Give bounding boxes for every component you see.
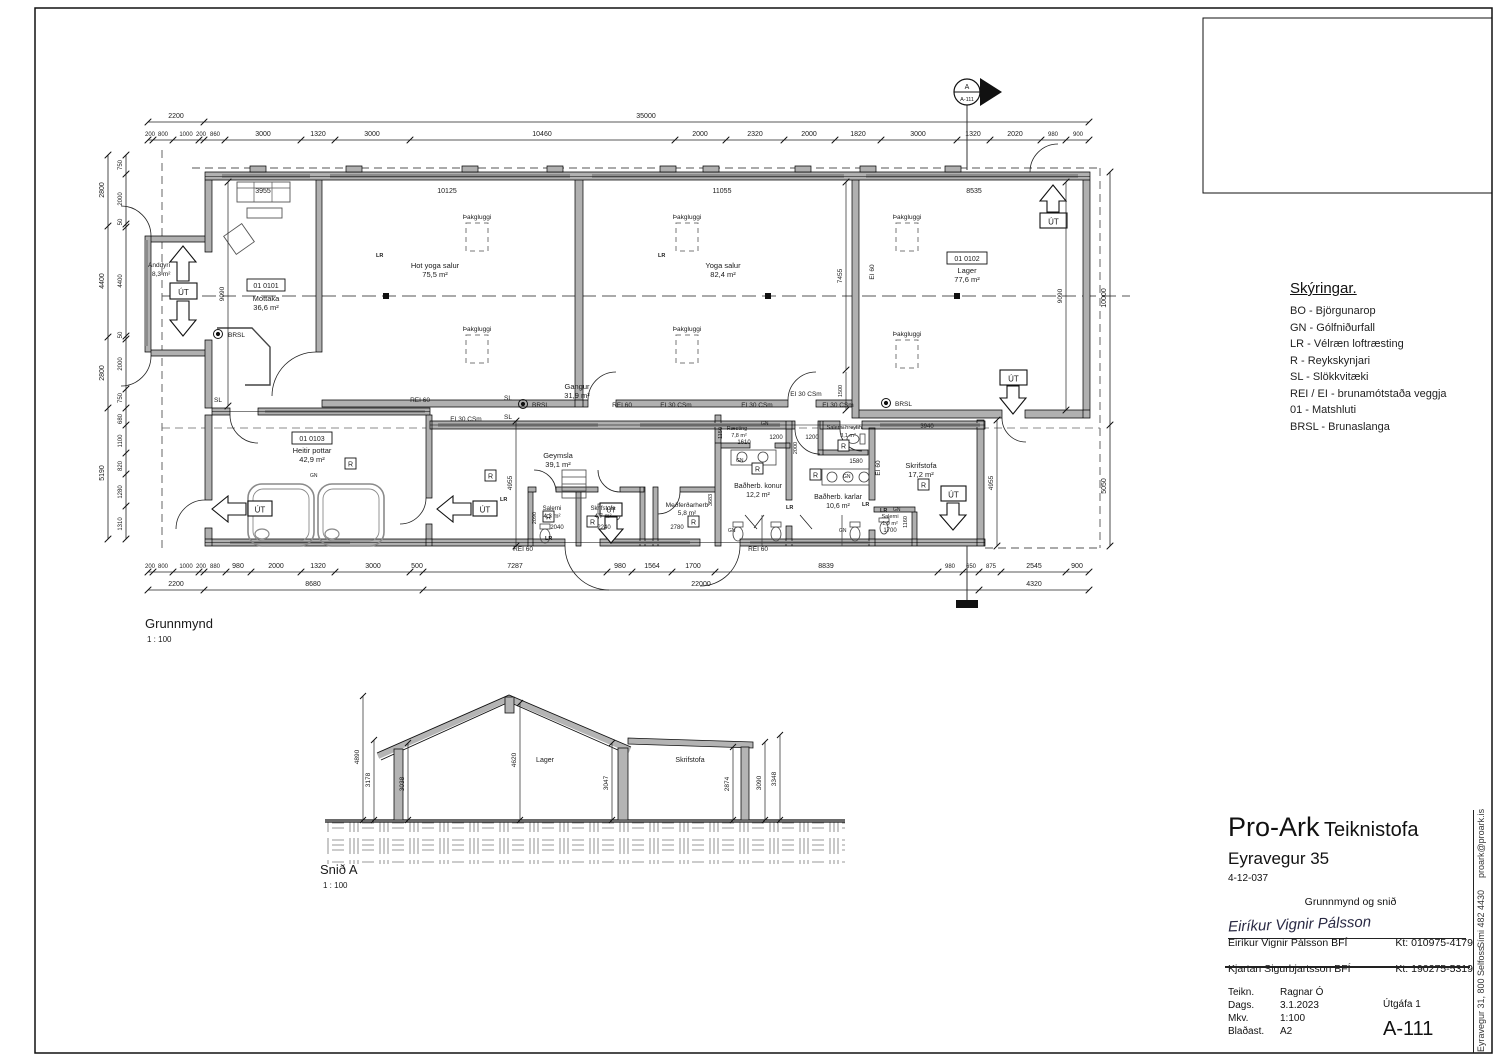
svg-text:1150: 1150 (718, 427, 724, 439)
dim-row-bottom2: 2200 8680 22000 4320 (168, 581, 1042, 588)
legend-item: GN - Gólfniðurfall (1290, 322, 1500, 334)
firm-email: proark@proark.is (1476, 809, 1486, 878)
teikn-label: Teikn. (1228, 987, 1280, 998)
svg-text:1280: 1280 (118, 485, 124, 499)
room-area: 3,1 m² (840, 433, 856, 439)
svg-text:200: 200 (196, 132, 207, 138)
svg-text:1610: 1610 (737, 440, 751, 446)
skylight-label: Þakgluggi (893, 214, 922, 221)
exit-arrow-up (1040, 185, 1066, 212)
legend-item: 01 - Matshluti (1290, 404, 1500, 416)
dags-value: 3.1.2023 (1280, 1000, 1319, 1011)
svg-text:900: 900 (1073, 132, 1084, 138)
location-box (1203, 18, 1492, 193)
svg-text:3178: 3178 (365, 772, 372, 787)
svg-text:1320: 1320 (965, 131, 981, 138)
roof-vents (250, 166, 961, 172)
lr-tag: LR (545, 536, 552, 542)
skylight-label: Þakgluggi (673, 214, 702, 221)
svg-text:1100: 1100 (118, 434, 124, 448)
dim-col-right: 10000 5050 (1101, 288, 1108, 494)
mkv-value: 1:100 (1280, 1013, 1305, 1024)
svg-text:4400: 4400 (99, 273, 106, 289)
rei-tag: REI 60 (513, 546, 533, 553)
svg-text:4890: 4890 (354, 749, 361, 764)
svg-text:750: 750 (118, 159, 124, 170)
svg-text:980: 980 (1048, 132, 1059, 138)
svg-text:980: 980 (614, 563, 626, 570)
svg-text:ÚT: ÚT (178, 288, 189, 297)
window-glazing (145, 174, 1078, 544)
svg-text:4620: 4620 (511, 752, 518, 767)
svg-text:2780: 2780 (670, 525, 684, 531)
svg-text:ÚT: ÚT (1008, 375, 1019, 384)
exit-arrows (170, 185, 1067, 543)
lr-tag: LR (500, 497, 507, 503)
lr-tag: LR (658, 253, 665, 259)
dim-lines-inner (228, 182, 1066, 546)
skylight-label: Þakgluggi (893, 331, 922, 338)
svg-text:5050: 5050 (1101, 478, 1108, 494)
dim-row-top-inner: 3955 10125 11055 8535 (255, 188, 982, 195)
brsl-label: BRSL (895, 401, 912, 408)
svg-text:1700: 1700 (685, 563, 701, 570)
svg-text:2000: 2000 (118, 357, 124, 371)
room-area: 17,2 m² (908, 470, 934, 479)
room-area: 1,9 m² (882, 521, 898, 527)
room-area: 12,2 m² (746, 492, 770, 499)
rei-tag: REI 60 (748, 546, 768, 553)
section-drawing: 4890 3178 3038 4620 3047 2874 3090 3348 … (320, 693, 845, 890)
svg-text:1200: 1200 (769, 435, 783, 441)
svg-text:3348: 3348 (771, 771, 778, 786)
svg-text:1700: 1700 (883, 528, 897, 534)
title-block: Pro-Ark Teiknistofa Eyravegur 35 4-12-03… (1228, 812, 1473, 1041)
svg-text:200: 200 (145, 564, 156, 570)
gn-tag: GN (310, 473, 318, 479)
room-area: 77,6 m² (954, 275, 980, 284)
room-name: Heitir pottar (293, 446, 332, 455)
ei-tag: EI 30 CSm (822, 402, 853, 409)
svg-text:ÚT: ÚT (255, 506, 266, 515)
ei60-tag: EI 60 (875, 460, 882, 476)
room-name: Yoga salur (705, 261, 741, 270)
svg-text:2020: 2020 (1007, 131, 1023, 138)
room-area: 8,3 m² (152, 271, 171, 278)
room-name: Gangur (564, 382, 590, 391)
room-name: Skrifstofa (590, 506, 616, 512)
company: Pro-Ark (1228, 812, 1320, 842)
svg-text:ÚT: ÚT (480, 506, 491, 515)
svg-text:1200: 1200 (805, 435, 819, 441)
skylight-label: Þakgluggi (673, 326, 702, 333)
rei-tag: REI 60 (612, 402, 632, 409)
svg-text:5190: 5190 (99, 465, 106, 481)
svg-text:1500: 1500 (838, 385, 844, 397)
blad-value: A2 (1280, 1026, 1292, 1037)
room-name: Móttaka (253, 294, 281, 303)
plan-title: Grunnmynd (145, 616, 213, 631)
section-scale: 1 : 100 (323, 881, 348, 890)
svg-text:50: 50 (118, 218, 124, 225)
dim-label: 2200 (168, 113, 184, 120)
room-id: 01 0101 (253, 283, 278, 290)
lr-tag: LR (862, 502, 869, 508)
svg-text:3683: 3683 (708, 494, 714, 506)
svg-text:1160: 1160 (903, 516, 909, 528)
dags-row: Dags. 3.1.2023 (1228, 1000, 1383, 1011)
svg-text:820: 820 (118, 460, 124, 471)
project-name: Eyravegur 35 (1228, 849, 1473, 869)
marker-sheet: A-111 (960, 97, 974, 103)
dim-row-top2: 200 800 1000 200 860 3000 1320 3000 1046… (145, 131, 1084, 138)
signature: Eiríkur Vignir Pálsson (1228, 914, 1372, 936)
svg-text:R: R (488, 474, 493, 481)
engineer-row: Kjartan Sigurbjartsson BFÍ Kt: 190275-53… (1228, 963, 1473, 975)
svg-text:800: 800 (158, 564, 169, 570)
blad-row: Blaðast. A2 (1228, 1026, 1383, 1037)
svg-text:R: R (691, 520, 696, 527)
svg-text:ÚT: ÚT (948, 491, 959, 500)
ground-hatch (325, 822, 845, 864)
table (247, 208, 282, 218)
svg-text:3940: 3940 (920, 424, 934, 430)
svg-text:2000: 2000 (268, 563, 284, 570)
room-area: 82,4 m² (710, 270, 736, 279)
room-area: 39,1 m² (545, 460, 571, 469)
room-area: 10,6 m² (826, 503, 850, 510)
legend-item: SL - Slökkvitæki (1290, 371, 1500, 383)
svg-text:1000: 1000 (179, 132, 193, 138)
svg-text:ÚT: ÚT (1048, 218, 1059, 227)
legend-item: REI / EI - brunamótstaða veggja (1290, 388, 1500, 400)
svg-text:2200: 2200 (168, 581, 184, 588)
brsl-label: BRSL (228, 332, 245, 339)
engineer-name: Kjartan Sigurbjartsson BFÍ (1228, 963, 1351, 975)
ei60-tag: EI 60 (869, 264, 876, 280)
svg-text:7287: 7287 (507, 563, 523, 570)
section-title: Snið A (320, 862, 358, 877)
room-id: 01 0103 (299, 436, 324, 443)
svg-text:11055: 11055 (713, 188, 732, 195)
room-id: 01 0102 (954, 256, 979, 263)
room-name: Salerni hreyfih. (827, 425, 864, 431)
version: Útgáfa 1 (1383, 999, 1473, 1010)
legend-item: BRSL - Brunaslanga (1290, 421, 1500, 433)
ei-tag: EI 30 CSm (660, 402, 691, 409)
svg-text:2000: 2000 (793, 442, 799, 454)
svg-text:980: 980 (232, 563, 244, 570)
svg-text:4955: 4955 (988, 475, 995, 490)
lr-tag: LR (880, 508, 887, 514)
svg-text:200: 200 (196, 564, 207, 570)
exit-arrow-left (212, 496, 246, 522)
svg-text:8839: 8839 (818, 563, 834, 570)
room-name: Baðherb. karlar (814, 493, 863, 501)
exit-arrow-down (170, 301, 196, 336)
skylight-boxes (466, 223, 918, 368)
engineer-kt: Kt: 190275-5319 (1395, 963, 1473, 975)
room-name: Salerni (543, 506, 562, 512)
exit-arrow-up (170, 246, 196, 281)
svg-text:2800: 2800 (99, 365, 106, 381)
room-area: 5,8 m² (678, 510, 697, 517)
svg-text:R: R (921, 483, 926, 490)
skylight-label: Þakgluggi (463, 326, 492, 333)
legend-title: Skýringar. (1290, 280, 1500, 297)
brsl-label: BRSL (532, 402, 549, 409)
svg-text:860: 860 (210, 132, 221, 138)
svg-text:8535: 8535 (966, 188, 982, 195)
svg-text:3000: 3000 (364, 131, 380, 138)
gn-tag: GN (728, 528, 736, 534)
shelving (562, 470, 586, 498)
svg-text:50: 50 (118, 331, 124, 338)
section-room-label: Skrifstofa (675, 757, 704, 764)
svg-text:900: 900 (1071, 563, 1083, 570)
svg-text:650: 650 (966, 564, 977, 570)
room-name: Hot yoga salur (411, 261, 460, 270)
room-name: Geymsla (543, 451, 573, 460)
section-dim-labels: 4890 3178 3038 4620 3047 2874 3090 3348 (354, 749, 778, 791)
mkv-label: Mkv. (1228, 1013, 1280, 1024)
room-name: Skrifstofa (905, 461, 937, 470)
lr-tag: LR (376, 253, 383, 259)
sl-tag: SL (504, 395, 512, 402)
mkv-row: Mkv. 1:100 (1228, 1013, 1383, 1024)
svg-text:7455: 7455 (837, 268, 844, 283)
room-area: 31,9 m² (564, 391, 590, 400)
svg-text:1564: 1564 (644, 563, 660, 570)
exit-arrow-left (437, 496, 471, 522)
svg-text:8680: 8680 (305, 581, 321, 588)
sl-tag: SL (214, 397, 222, 404)
section-dim-ticks (360, 693, 783, 823)
svg-text:2545: 2545 (1026, 563, 1042, 570)
section-dim-lines (363, 696, 780, 820)
svg-text:4320: 4320 (1026, 581, 1042, 588)
teikn-row: Teikn. Ragnar Ó (1228, 987, 1383, 998)
legend-item: BO - Björgunarop (1290, 305, 1500, 317)
firm-phone: Sími 482 4430 (1476, 890, 1486, 948)
svg-text:3090: 3090 (756, 775, 763, 790)
brsl-symbols (214, 330, 891, 409)
titleblock-divider (1473, 810, 1474, 1053)
svg-text:2320: 2320 (747, 131, 763, 138)
teikn-value: Ragnar Ó (1280, 987, 1323, 998)
svg-text:R: R (813, 473, 818, 480)
svg-text:9090: 9090 (219, 286, 226, 301)
svg-text:10125: 10125 (437, 188, 457, 195)
room-area: 4,7 m² (594, 514, 611, 520)
studio: Teiknistofa (1324, 819, 1419, 841)
room-name: Salerni (881, 514, 898, 520)
svg-text:2090: 2090 (532, 512, 538, 524)
ei-tag: EI 30 CSm (450, 416, 481, 423)
dim-col-left: 2800 4400 2800 5190 750 2000 50 4400 50 … (99, 159, 124, 530)
svg-text:1820: 1820 (850, 131, 866, 138)
svg-text:R: R (755, 467, 760, 474)
gn-tag: GN (761, 421, 769, 427)
svg-text:750: 750 (118, 392, 124, 403)
gn-tag: GN (893, 507, 901, 513)
gn-tag: GN (839, 528, 847, 534)
svg-text:9090: 9090 (1057, 288, 1064, 303)
legend-item: R - Reykskynjari (1290, 355, 1500, 367)
company-name: Pro-Ark Teiknistofa (1228, 812, 1473, 843)
svg-text:3955: 3955 (255, 188, 271, 195)
lr-tag: LR (786, 505, 793, 511)
room-name: Lager (957, 266, 977, 275)
svg-text:2874: 2874 (724, 776, 731, 791)
marker-letter: A (965, 84, 970, 91)
svg-text:1320: 1320 (310, 563, 326, 570)
svg-text:3047: 3047 (603, 775, 610, 790)
svg-text:3000: 3000 (365, 563, 381, 570)
room-name: Meðferðarherb (666, 501, 709, 509)
ei-tag: EI 30 CSm (741, 402, 772, 409)
room-area: 42,9 m² (299, 455, 325, 464)
svg-text:200: 200 (145, 132, 156, 138)
svg-text:2000: 2000 (118, 192, 124, 206)
svg-text:2040: 2040 (550, 525, 564, 531)
svg-text:3038: 3038 (399, 776, 406, 791)
room-name: Ræsting (727, 426, 747, 432)
dim-label: 35000 (636, 113, 656, 120)
sl-tag: SL (504, 414, 512, 421)
svg-text:2000: 2000 (801, 131, 817, 138)
skylight-label: Þakgluggi (463, 214, 492, 221)
plan-scale: 1 : 100 (147, 635, 172, 644)
svg-text:1310: 1310 (118, 517, 124, 531)
blad-label: Blaðast. (1228, 1026, 1280, 1037)
svg-text:R: R (348, 462, 353, 469)
dags-label: Dags. (1228, 1000, 1280, 1011)
svg-text:1580: 1580 (849, 459, 863, 465)
exit-arrow-down (940, 503, 966, 530)
drawing-sheet: Þakgluggi Þakgluggi Þakgluggi Þakgluggi … (0, 0, 1500, 1061)
svg-text:10460: 10460 (532, 131, 552, 138)
svg-text:3000: 3000 (255, 131, 271, 138)
svg-text:1000: 1000 (179, 564, 193, 570)
drawing-title: Grunnmynd og snið (1228, 896, 1473, 908)
svg-text:4955: 4955 (507, 475, 514, 490)
svg-text:10000: 10000 (1101, 288, 1108, 308)
sheet-number: A-111 (1383, 1018, 1473, 1041)
svg-text:3000: 3000 (910, 131, 926, 138)
exit-arrow-down (1000, 386, 1026, 414)
room-name: Baðherb. konur (734, 482, 783, 490)
room-area: 75,5 m² (422, 270, 448, 279)
firm-address: Eyravegur 31, 800 Selfoss (1476, 946, 1486, 1052)
svg-text:1320: 1320 (310, 131, 326, 138)
hot-tub (318, 484, 384, 546)
svg-text:2000: 2000 (692, 131, 708, 138)
svg-text:680: 680 (118, 413, 124, 424)
section-room-label: Lager (536, 757, 555, 764)
svg-text:500: 500 (411, 563, 423, 570)
svg-text:980: 980 (945, 564, 956, 570)
svg-text:800: 800 (158, 132, 169, 138)
gn-tag: GN (843, 474, 851, 480)
gn-tag: GN (736, 458, 744, 464)
svg-text:2240: 2240 (597, 525, 611, 531)
svg-text:875: 875 (986, 564, 997, 570)
room-name: Anddyri (148, 262, 170, 269)
svg-text:22000: 22000 (691, 581, 711, 588)
svg-text:880: 880 (210, 564, 221, 570)
room-area: 36,6 m² (253, 303, 279, 312)
svg-text:2800: 2800 (99, 182, 106, 198)
svg-text:R: R (590, 520, 595, 527)
ei-tag: EI 30 CSm (790, 391, 821, 398)
legend-item: LR - Vélræn loftræsting (1290, 338, 1500, 350)
rei-tag: REI 60 (410, 397, 430, 404)
room-area: 4,3 m² (543, 514, 560, 520)
legend: Skýringar. BO - Björgunarop GN - Gólfnið… (1290, 280, 1500, 437)
room-area: 7,8 m² (731, 433, 747, 439)
svg-text:R: R (841, 444, 846, 451)
project-number: 4-12-037 (1228, 873, 1473, 884)
svg-text:4400: 4400 (118, 274, 124, 288)
dim-row-bottom1: 200 800 1000 200 880 980 2000 1320 3000 … (145, 563, 1083, 570)
